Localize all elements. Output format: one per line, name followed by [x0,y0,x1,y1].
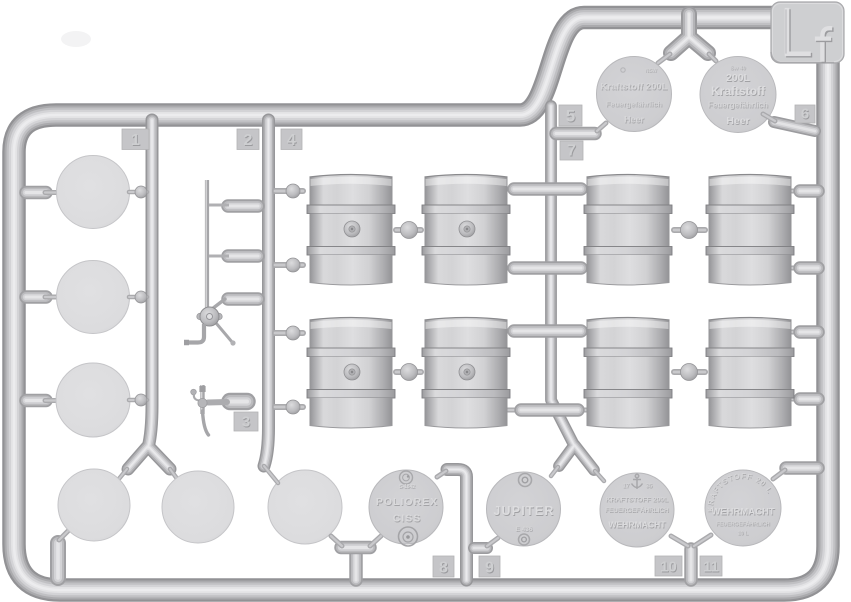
svg-text:E 436: E 436 [516,526,533,533]
svg-text:3: 3 [242,414,250,431]
svg-text:Kraftstoff: Kraftstoff [711,84,766,98]
svg-text:Feuergefährlich: Feuergefährlich [606,100,663,109]
svg-text:WEHRMACHT: WEHRMACHT [608,520,666,530]
svg-text:1: 1 [131,132,140,149]
svg-text:17: 17 [623,484,630,490]
svg-text:FEUERGEFÄHRLICH: FEUERGEFÄHRLICH [605,506,669,514]
svg-text:FEUERGEFÄHRLICH: FEUERGEFÄHRLICH [716,521,770,528]
svg-text:35: 35 [646,484,653,490]
svg-text:9: 9 [485,560,494,577]
svg-text:Heer: Heer [624,115,645,125]
svg-text:JUPITER: JUPITER [493,504,554,518]
svg-text:Kraftstoff 200L: Kraftstoff 200L [600,82,667,93]
svg-text:S-1842: S-1842 [399,484,415,490]
svg-text:4: 4 [287,132,296,149]
svg-text:WEHRMACHT: WEHRMACHT [711,507,775,518]
svg-text:6: 6 [801,106,809,123]
svg-text:11: 11 [703,559,719,576]
svg-text:8: 8 [439,560,448,577]
svg-text:Sw 40: Sw 40 [730,66,746,72]
svg-text:5: 5 [566,107,575,126]
svg-text:Heer: Heer [726,115,749,127]
svg-text:200L: 200L [726,72,751,84]
svg-text:KRAFTSTOFF 200L: KRAFTSTOFF 200L [606,497,669,504]
svg-text:10 L: 10 L [738,531,749,537]
svg-text:10: 10 [660,559,677,576]
svg-text:CISS: CISS [393,513,422,525]
svg-text:7: 7 [567,143,576,160]
svg-text:Feuergefährlich: Feuergefährlich [708,101,768,110]
svg-text:POLIOREX: POLIOREX [376,496,438,508]
svg-text:NSW: NSW [645,68,657,74]
svg-text:2: 2 [244,132,253,149]
